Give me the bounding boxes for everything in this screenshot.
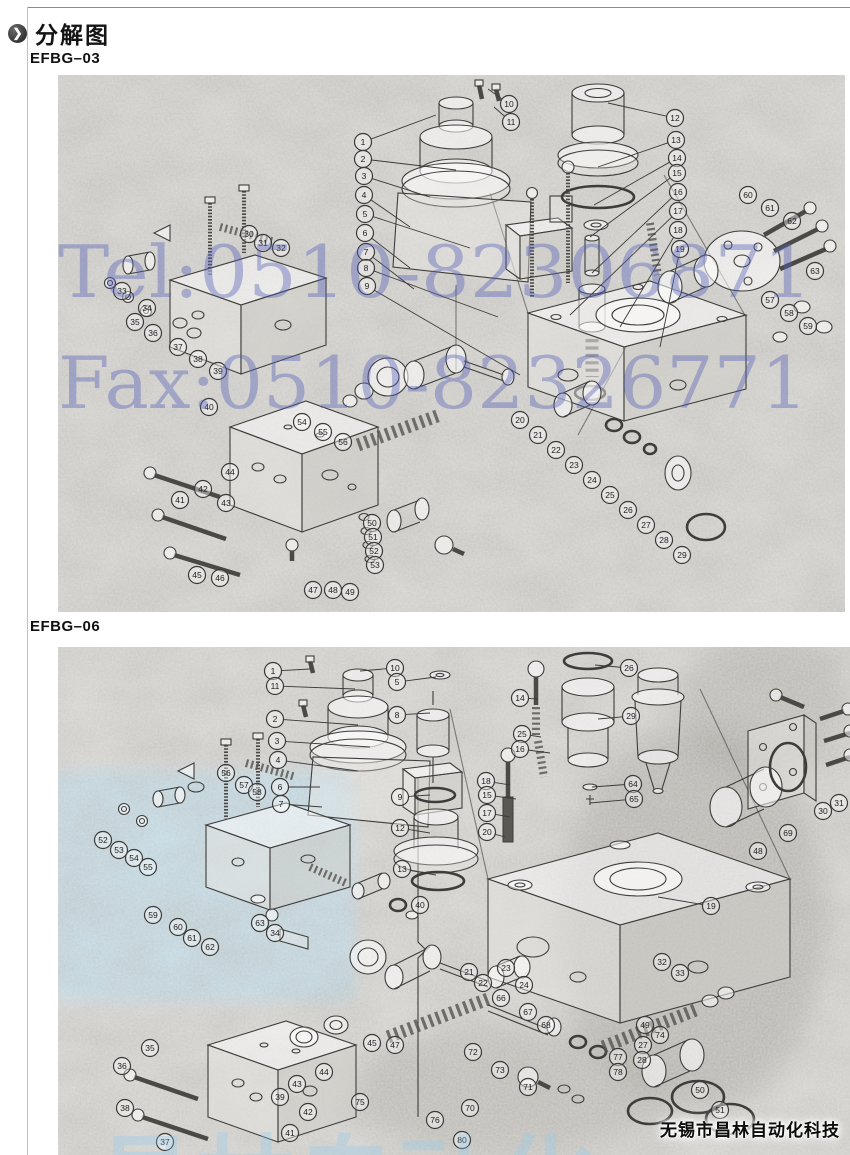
svg-text:20: 20 bbox=[482, 827, 492, 837]
svg-text:26: 26 bbox=[624, 663, 634, 673]
svg-text:11: 11 bbox=[507, 117, 516, 127]
svg-text:17: 17 bbox=[482, 808, 492, 818]
svg-text:55: 55 bbox=[143, 862, 153, 872]
svg-text:4: 4 bbox=[362, 190, 367, 200]
svg-text:67: 67 bbox=[523, 1007, 533, 1017]
svg-text:28: 28 bbox=[659, 535, 669, 545]
svg-text:37: 37 bbox=[173, 342, 183, 352]
svg-text:19: 19 bbox=[675, 244, 685, 254]
svg-text:74: 74 bbox=[655, 1030, 665, 1040]
svg-text:7: 7 bbox=[279, 799, 284, 809]
svg-text:57: 57 bbox=[765, 295, 775, 305]
svg-text:44: 44 bbox=[225, 467, 235, 477]
svg-text:60: 60 bbox=[173, 922, 183, 932]
svg-text:21: 21 bbox=[464, 967, 474, 977]
svg-text:6: 6 bbox=[363, 228, 368, 238]
svg-text:76: 76 bbox=[430, 1115, 440, 1125]
svg-text:16: 16 bbox=[673, 187, 683, 197]
chevron-right-icon: ❯ bbox=[8, 24, 27, 43]
svg-text:39: 39 bbox=[275, 1092, 285, 1102]
svg-text:47: 47 bbox=[308, 585, 318, 595]
svg-text:64: 64 bbox=[628, 779, 638, 789]
svg-text:41: 41 bbox=[175, 495, 185, 505]
svg-text:11: 11 bbox=[271, 681, 280, 691]
svg-text:47: 47 bbox=[390, 1040, 400, 1050]
page-title: 分解图 bbox=[35, 16, 110, 50]
svg-text:29: 29 bbox=[626, 711, 636, 721]
svg-text:23: 23 bbox=[501, 963, 511, 973]
svg-text:3: 3 bbox=[275, 736, 280, 746]
svg-text:46: 46 bbox=[215, 573, 225, 583]
svg-text:10: 10 bbox=[390, 663, 400, 673]
svg-text:28: 28 bbox=[637, 1055, 647, 1065]
svg-text:3: 3 bbox=[362, 171, 367, 181]
svg-text:53: 53 bbox=[114, 845, 124, 855]
svg-text:7: 7 bbox=[364, 247, 369, 257]
svg-text:4: 4 bbox=[276, 755, 281, 765]
svg-text:16: 16 bbox=[515, 744, 525, 754]
svg-text:24: 24 bbox=[519, 980, 529, 990]
svg-text:29: 29 bbox=[677, 550, 687, 560]
svg-text:12: 12 bbox=[670, 113, 680, 123]
svg-text:30: 30 bbox=[818, 806, 828, 816]
svg-text:23: 23 bbox=[569, 460, 579, 470]
svg-text:15: 15 bbox=[672, 168, 682, 178]
svg-text:1: 1 bbox=[361, 137, 366, 147]
svg-text:2: 2 bbox=[361, 154, 366, 164]
svg-text:17: 17 bbox=[673, 206, 683, 216]
svg-text:80: 80 bbox=[457, 1135, 467, 1145]
svg-text:26: 26 bbox=[623, 505, 633, 515]
svg-text:22: 22 bbox=[478, 978, 488, 988]
svg-text:13: 13 bbox=[397, 864, 407, 874]
svg-text:73: 73 bbox=[495, 1065, 505, 1075]
svg-text:78: 78 bbox=[613, 1067, 623, 1077]
svg-text:14: 14 bbox=[672, 153, 682, 163]
svg-text:41: 41 bbox=[285, 1128, 295, 1138]
svg-text:2: 2 bbox=[273, 714, 278, 724]
svg-text:9: 9 bbox=[398, 792, 403, 802]
svg-text:63: 63 bbox=[255, 918, 265, 928]
svg-text:50: 50 bbox=[367, 518, 377, 528]
svg-text:42: 42 bbox=[198, 484, 208, 494]
svg-text:14: 14 bbox=[515, 693, 525, 703]
svg-text:45: 45 bbox=[192, 570, 202, 580]
svg-text:53: 53 bbox=[370, 560, 380, 570]
svg-text:30: 30 bbox=[244, 229, 254, 239]
svg-text:70: 70 bbox=[465, 1103, 475, 1113]
svg-text:44: 44 bbox=[319, 1067, 329, 1077]
svg-text:35: 35 bbox=[130, 317, 140, 327]
svg-text:32: 32 bbox=[657, 957, 667, 967]
svg-text:40: 40 bbox=[204, 402, 214, 412]
svg-text:33: 33 bbox=[675, 968, 685, 978]
svg-text:45: 45 bbox=[367, 1038, 377, 1048]
svg-text:43: 43 bbox=[292, 1079, 302, 1089]
svg-text:35: 35 bbox=[145, 1043, 155, 1053]
svg-text:38: 38 bbox=[193, 354, 203, 364]
svg-text:10: 10 bbox=[504, 99, 514, 109]
svg-text:60: 60 bbox=[743, 190, 753, 200]
svg-text:43: 43 bbox=[221, 498, 231, 508]
svg-text:8: 8 bbox=[395, 710, 400, 720]
svg-text:54: 54 bbox=[129, 853, 139, 863]
svg-text:1: 1 bbox=[271, 666, 276, 676]
svg-text:69: 69 bbox=[783, 828, 793, 838]
top-rule bbox=[27, 7, 850, 8]
diagram-label-efbg-06: EFBG–06 bbox=[30, 618, 100, 635]
svg-text:50: 50 bbox=[695, 1085, 705, 1095]
svg-text:31: 31 bbox=[834, 798, 844, 808]
svg-text:63: 63 bbox=[810, 266, 820, 276]
svg-text:55: 55 bbox=[318, 427, 328, 437]
svg-text:25: 25 bbox=[605, 490, 615, 500]
svg-text:66: 66 bbox=[496, 993, 506, 1003]
svg-text:21: 21 bbox=[533, 430, 543, 440]
diagram-label-efbg-03: EFBG–03 bbox=[30, 50, 100, 67]
svg-text:33: 33 bbox=[117, 286, 127, 296]
svg-text:27: 27 bbox=[638, 1040, 648, 1050]
svg-text:68: 68 bbox=[541, 1020, 551, 1030]
document-page: ❯ 分解图 EFBG–03 bbox=[0, 0, 850, 1155]
svg-text:62: 62 bbox=[205, 942, 215, 952]
svg-text:12: 12 bbox=[395, 823, 405, 833]
svg-text:39: 39 bbox=[213, 366, 223, 376]
svg-text:5: 5 bbox=[395, 677, 400, 687]
left-rule bbox=[27, 7, 28, 1155]
svg-text:59: 59 bbox=[148, 910, 158, 920]
svg-text:13: 13 bbox=[671, 135, 681, 145]
svg-text:61: 61 bbox=[187, 933, 197, 943]
svg-text:37: 37 bbox=[160, 1137, 170, 1147]
svg-text:36: 36 bbox=[117, 1061, 127, 1071]
svg-text:18: 18 bbox=[481, 776, 491, 786]
svg-text:56: 56 bbox=[338, 437, 348, 447]
svg-text:56: 56 bbox=[221, 768, 231, 778]
svg-text:24: 24 bbox=[587, 475, 597, 485]
svg-text:57: 57 bbox=[239, 780, 249, 790]
svg-text:5: 5 bbox=[363, 209, 368, 219]
svg-text:52: 52 bbox=[98, 835, 108, 845]
svg-text:6: 6 bbox=[278, 782, 283, 792]
svg-text:18: 18 bbox=[673, 225, 683, 235]
svg-text:19: 19 bbox=[706, 901, 716, 911]
svg-text:42: 42 bbox=[303, 1107, 313, 1117]
svg-text:51: 51 bbox=[368, 532, 378, 542]
svg-text:61: 61 bbox=[765, 203, 775, 213]
svg-text:59: 59 bbox=[803, 321, 813, 331]
svg-text:40: 40 bbox=[415, 900, 425, 910]
svg-text:77: 77 bbox=[613, 1052, 623, 1062]
section-header: ❯ 分解图 bbox=[8, 16, 110, 50]
svg-text:52: 52 bbox=[369, 546, 379, 556]
svg-text:62: 62 bbox=[787, 216, 797, 226]
svg-text:9: 9 bbox=[365, 281, 370, 291]
svg-text:22: 22 bbox=[551, 445, 561, 455]
svg-text:65: 65 bbox=[629, 794, 639, 804]
svg-text:72: 72 bbox=[468, 1047, 478, 1057]
svg-text:71: 71 bbox=[523, 1082, 533, 1092]
svg-text:49: 49 bbox=[345, 587, 355, 597]
exploded-diagram-efbg-06: 1112346710589121314251618151720262964651… bbox=[58, 647, 850, 1155]
svg-text:25: 25 bbox=[517, 729, 527, 739]
exploded-diagram-efbg-03: 1234567891011121314151617181920212223242… bbox=[58, 75, 845, 612]
svg-text:36: 36 bbox=[148, 328, 158, 338]
svg-text:54: 54 bbox=[297, 417, 307, 427]
svg-text:31: 31 bbox=[258, 238, 268, 248]
svg-text:32: 32 bbox=[276, 243, 286, 253]
svg-text:48: 48 bbox=[753, 846, 763, 856]
svg-text:75: 75 bbox=[355, 1097, 365, 1107]
svg-text:58: 58 bbox=[252, 787, 262, 797]
svg-text:51: 51 bbox=[715, 1105, 725, 1115]
svg-text:34: 34 bbox=[142, 303, 152, 313]
svg-text:48: 48 bbox=[328, 585, 338, 595]
svg-text:27: 27 bbox=[641, 520, 651, 530]
svg-text:20: 20 bbox=[515, 415, 525, 425]
svg-text:34: 34 bbox=[270, 928, 280, 938]
efbg-03-drawing: 1234567891011121314151617181920212223242… bbox=[58, 75, 845, 612]
company-footer: 无锡市昌林自动化科技 bbox=[660, 1116, 840, 1141]
svg-text:58: 58 bbox=[784, 308, 794, 318]
svg-text:15: 15 bbox=[482, 790, 492, 800]
efbg-06-drawing: 1112346710589121314251618151720262964651… bbox=[58, 647, 850, 1155]
svg-text:49: 49 bbox=[640, 1020, 650, 1030]
svg-text:8: 8 bbox=[364, 263, 369, 273]
svg-text:38: 38 bbox=[120, 1103, 130, 1113]
